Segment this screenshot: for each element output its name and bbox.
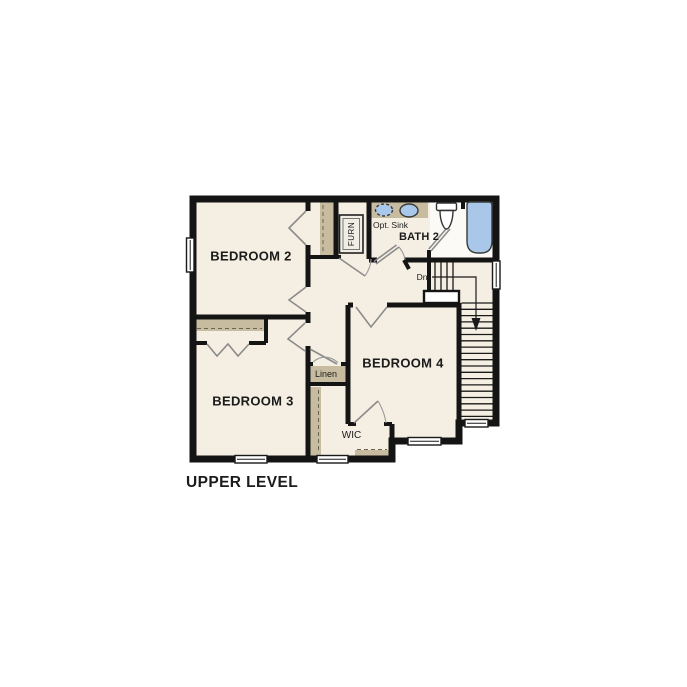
linen-label: Linen bbox=[315, 369, 337, 379]
floor-plan: BEDROOM 2 BEDROOM 3 BEDROOM 4 BATH 2 Opt… bbox=[0, 0, 687, 687]
floor-plan-page: BEDROOM 2 BEDROOM 3 BEDROOM 4 BATH 2 Opt… bbox=[0, 0, 687, 687]
bedroom3-label: BEDROOM 3 bbox=[212, 393, 293, 408]
bedroom2-label: BEDROOM 2 bbox=[210, 248, 291, 263]
opt-sink-label: Opt. Sink bbox=[373, 220, 409, 230]
bedroom4-window bbox=[408, 438, 441, 446]
wic-shelf-left bbox=[310, 387, 321, 457]
bath2-label: BATH 2 bbox=[399, 231, 439, 243]
wic-window bbox=[317, 456, 348, 464]
bedroom2-closet-shelf bbox=[320, 202, 334, 255]
bathtub-icon bbox=[467, 202, 492, 253]
stairwell-bottom-window bbox=[465, 420, 488, 428]
optional-sink-icon bbox=[376, 204, 393, 216]
bedroom4-label: BEDROOM 4 bbox=[362, 355, 444, 370]
furnace-label: FURN bbox=[347, 222, 356, 246]
plan-title: UPPER LEVEL bbox=[186, 474, 298, 491]
sink-icon bbox=[400, 204, 418, 217]
bedroom3-window bbox=[235, 456, 267, 464]
stairwell-side-window bbox=[493, 261, 501, 289]
wic-label: WIC bbox=[342, 430, 361, 441]
bedroom2-window bbox=[187, 238, 195, 272]
stairs-down-label: Dn bbox=[417, 272, 428, 282]
stair-landing bbox=[424, 291, 459, 303]
bedroom3-closet-shelf bbox=[195, 319, 265, 331]
